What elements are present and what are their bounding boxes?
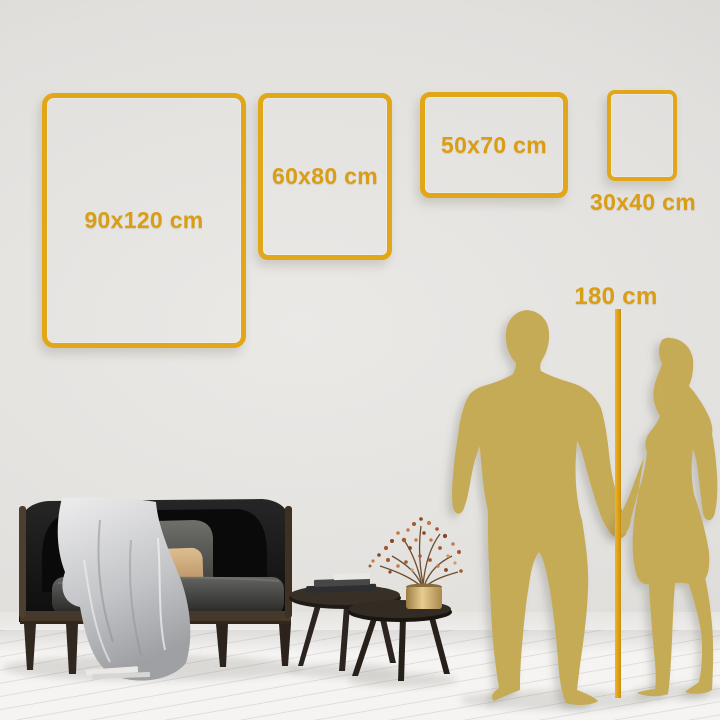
coffee-tables-illustration [289, 517, 463, 681]
height-reference-label: 180 cm [560, 283, 672, 311]
man-silhouette-icon [452, 310, 627, 705]
wall-art-size-guide: 90x120 cm 60x80 cm 50x70 cm 30x40 cm 180… [0, 0, 720, 720]
size-frame-50x70: 50x70 cm [420, 92, 568, 198]
size-label-30x40: 30x40 cm [588, 189, 698, 216]
table-books [306, 573, 377, 593]
size-frame-90x120: 90x120 cm [42, 93, 246, 348]
size-frame-60x80: 60x80 cm [258, 93, 392, 260]
size-frame-30x40 [607, 90, 677, 181]
sofa-illustration [19, 497, 292, 681]
woman-silhouette-icon [614, 338, 717, 697]
size-label-90x120: 90x120 cm [84, 207, 203, 234]
size-label-50x70: 50x70 cm [441, 132, 547, 159]
size-label-60x80: 60x80 cm [272, 163, 378, 190]
plant-blossoms [369, 517, 463, 573]
height-measure-line [615, 309, 621, 698]
